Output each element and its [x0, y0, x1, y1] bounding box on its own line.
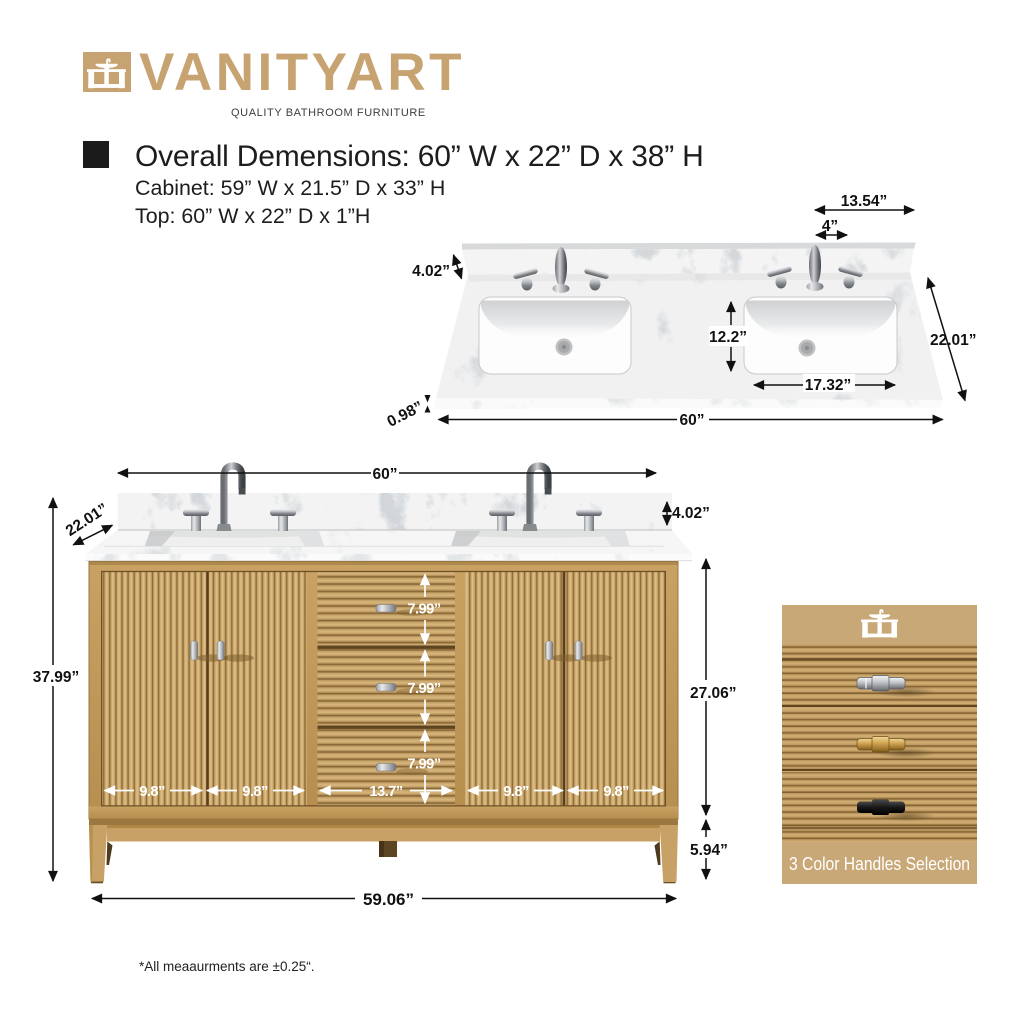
- svg-text:*All meaaurments are ±0.25“.: *All meaaurments are ±0.25“.: [139, 959, 315, 974]
- svg-text:59.06”: 59.06”: [363, 890, 414, 909]
- svg-text:9.8”: 9.8”: [603, 784, 629, 800]
- svg-text:QUALITY BATHROOM FURNITURE: QUALITY BATHROOM FURNITURE: [231, 107, 426, 119]
- svg-text:3 Color Handles Selection: 3 Color Handles Selection: [789, 854, 970, 874]
- svg-text:22.01”: 22.01”: [930, 332, 977, 349]
- svg-text:9.8”: 9.8”: [139, 784, 165, 800]
- svg-text:VANITYART: VANITYART: [139, 43, 465, 102]
- svg-text:Cabinet: 59” W x 21.5” D x 33”: Cabinet: 59” W x 21.5” D x 33” H: [135, 176, 445, 200]
- svg-text:4.02”: 4.02”: [672, 505, 710, 522]
- svg-text:22.01”: 22.01”: [63, 500, 111, 540]
- svg-text:13.54”: 13.54”: [841, 193, 888, 210]
- svg-text:37.99”: 37.99”: [33, 669, 80, 686]
- svg-text:60”: 60”: [373, 466, 398, 483]
- svg-text:17.32”: 17.32”: [805, 377, 852, 394]
- svg-text:4.02”: 4.02”: [412, 263, 450, 280]
- svg-text:9.8”: 9.8”: [242, 784, 268, 800]
- svg-text:7.99”: 7.99”: [407, 681, 440, 697]
- svg-text:7.99”: 7.99”: [407, 602, 440, 618]
- svg-text:60”: 60”: [680, 412, 705, 429]
- svg-text:5.94”: 5.94”: [690, 842, 728, 859]
- svg-text:9.8”: 9.8”: [503, 784, 529, 800]
- svg-text:4”: 4”: [822, 218, 838, 235]
- svg-text:Top: 60” W x 22” D x 1”H: Top: 60” W x 22” D x 1”H: [135, 204, 370, 228]
- svg-text:Overall Demensions: 60” W x 22: Overall Demensions: 60” W x 22” D x 38” …: [135, 140, 704, 173]
- svg-text:7.99”: 7.99”: [407, 757, 440, 773]
- svg-text:13.7”: 13.7”: [369, 784, 402, 800]
- svg-text:12.2”: 12.2”: [709, 329, 747, 346]
- svg-text:0.98”: 0.98”: [384, 398, 426, 430]
- svg-text:27.06”: 27.06”: [690, 685, 737, 702]
